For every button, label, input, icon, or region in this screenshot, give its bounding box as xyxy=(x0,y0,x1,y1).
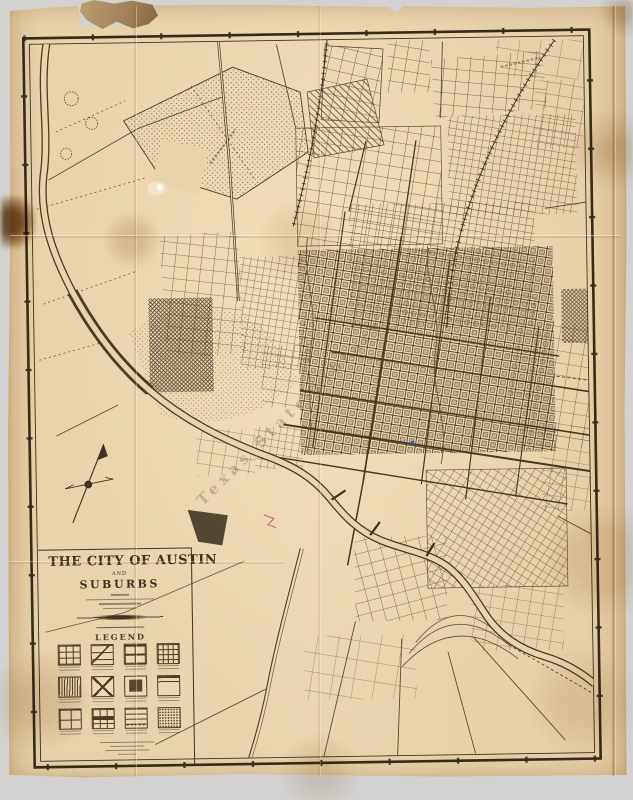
legend-item-open-grid xyxy=(59,708,82,736)
legend-label-illegible xyxy=(159,729,180,735)
title-block: THE CITY OF AUSTIN AND SUBURBS xyxy=(48,553,191,629)
illegible-text-line xyxy=(100,741,154,743)
inner-grid-swatch-icon xyxy=(157,643,180,664)
compass-rose-icon xyxy=(65,444,114,523)
legend-label-illegible xyxy=(92,666,113,672)
legend-label-illegible xyxy=(158,697,179,703)
legend-label-illegible xyxy=(126,729,147,735)
cross-diagonal-swatch-icon xyxy=(91,676,114,697)
top-bands-swatch-icon xyxy=(157,675,180,696)
grid-band-swatch-icon xyxy=(92,708,115,729)
banded-grid-swatch-icon xyxy=(124,643,147,664)
lined-dotted-swatch-icon xyxy=(125,707,148,728)
legend-item-top-bands xyxy=(157,675,180,703)
illegible-text-line xyxy=(118,753,136,755)
stipple-swatch-icon xyxy=(158,707,181,728)
legend-label-illegible xyxy=(93,730,114,736)
stippled-tract xyxy=(123,66,309,201)
illegible-text-line xyxy=(86,598,154,601)
publisher-note-illegible xyxy=(89,738,165,755)
solid-block-swatch-icon xyxy=(124,675,147,696)
illegible-text-line xyxy=(103,607,137,609)
legend-label-illegible xyxy=(125,665,146,671)
map-rotation-wrapper: THE CITY OF AUSTIN AND SUBURBS LEGEND Te… xyxy=(0,0,633,800)
legend-label-illegible xyxy=(125,697,146,703)
diagonal-corner-swatch-icon xyxy=(91,644,114,665)
dark-pond xyxy=(188,509,229,546)
grid-streets-swatch-icon xyxy=(58,644,81,665)
legend-title: LEGEND xyxy=(49,631,191,643)
title-ornament-rule xyxy=(77,614,163,620)
legend-item-lined-dotted xyxy=(125,707,148,735)
legend-label-illegible xyxy=(92,698,113,704)
legend-label-illegible xyxy=(60,730,81,736)
legend-item-cross-diagonal xyxy=(91,676,114,704)
illegible-text-line xyxy=(105,749,149,751)
legend-label-illegible xyxy=(59,698,80,704)
legend-grid xyxy=(58,643,183,737)
map-title: THE CITY OF AUSTIN xyxy=(48,553,190,570)
dark-crosshatch-tract xyxy=(148,298,213,393)
legend-item-stipple xyxy=(158,707,181,735)
red-scribble-mark xyxy=(264,515,276,528)
open-grid-swatch-icon xyxy=(59,708,82,729)
legend-label-illegible xyxy=(59,666,80,672)
legend-item-banded-grid xyxy=(124,643,147,671)
legend-item-diagonal-corner xyxy=(91,644,114,672)
title-small-print-illegible xyxy=(49,593,191,610)
illegible-text-line xyxy=(110,745,144,747)
legend-item-inner-grid xyxy=(157,643,180,671)
legend-item-grid-band xyxy=(92,708,115,736)
legend-item-vertical-hatch xyxy=(58,676,81,704)
legend-item-grid-streets xyxy=(58,644,81,672)
vertical-hatch-swatch-icon xyxy=(58,676,81,697)
illegible-text-line xyxy=(111,594,129,596)
illegible-text-line xyxy=(99,603,141,605)
scanned-map-page: THE CITY OF AUSTIN AND SUBURBS LEGEND Te… xyxy=(0,0,633,800)
legend-label-illegible xyxy=(158,665,179,671)
map-subtitle: SUBURBS xyxy=(49,577,191,592)
legend-item-solid-block xyxy=(124,675,147,703)
